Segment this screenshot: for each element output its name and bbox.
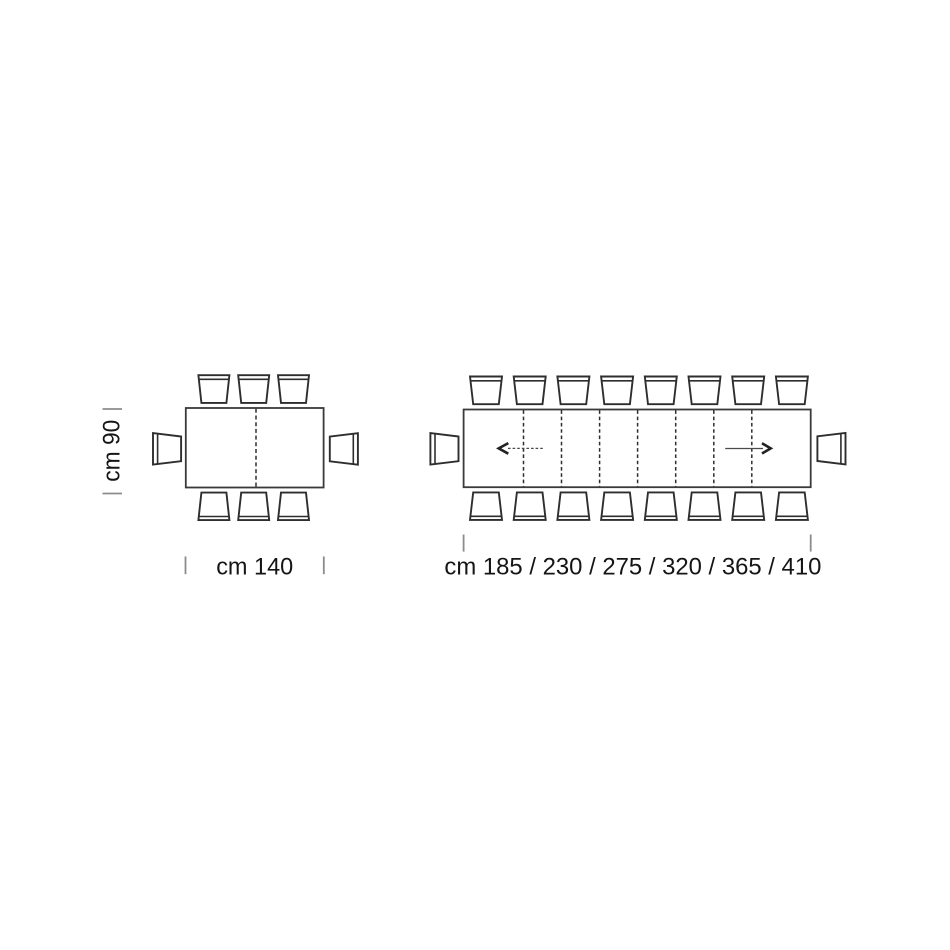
svg-text:cm 90: cm 90 xyxy=(99,420,126,482)
svg-text:cm 140: cm 140 xyxy=(216,553,293,580)
svg-text:cm 185 / 230 / 275 / 320 / 365: cm 185 / 230 / 275 / 320 / 365 / 410 xyxy=(444,554,821,581)
